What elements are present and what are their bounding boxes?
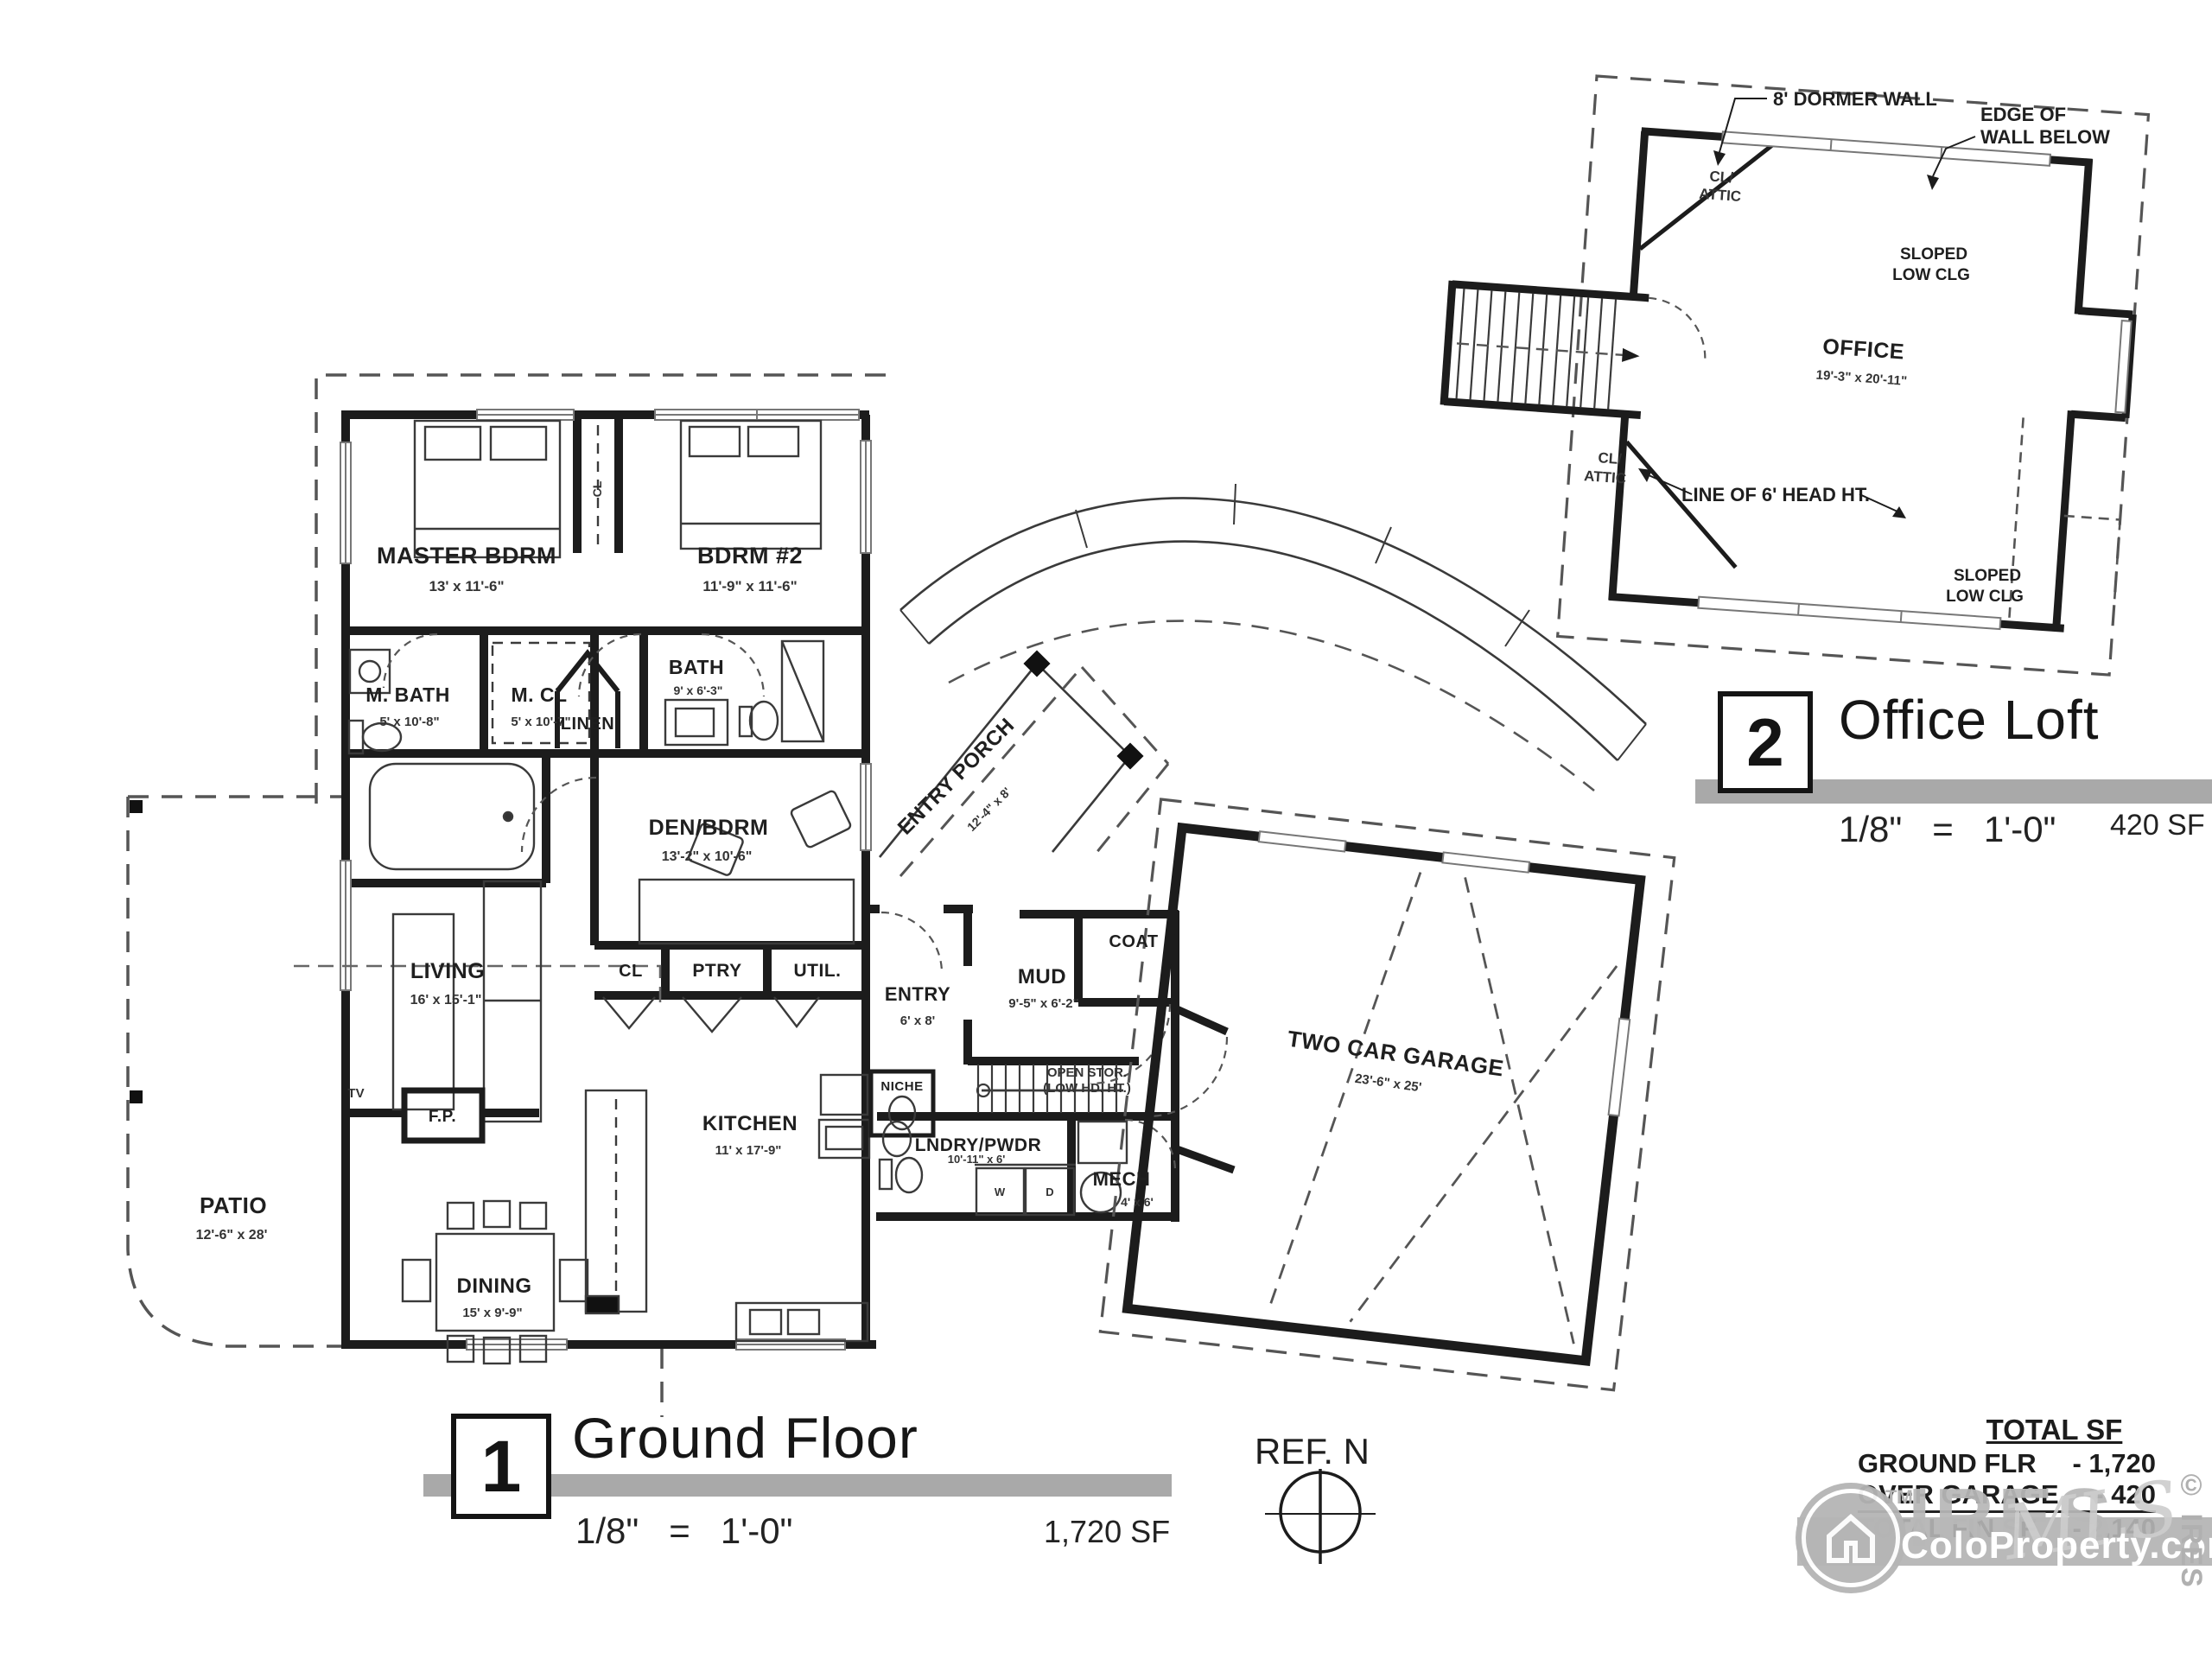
loft-windows [1689,131,2142,637]
label-entry-porch: ENTRY PORCH [893,714,1020,840]
watermark-site: ColoProperty.com® [1901,1524,2212,1567]
garage-walls [1128,828,1641,1361]
ground-floor-area: 1,720 SF [1044,1514,1170,1550]
label-cl-attic-bottom-2: ATTIC [1584,467,1627,486]
label-linen: LINEN [561,715,615,734]
label-sloped-1b: LOW CLG [1892,266,1970,284]
stair-direction-arrow [1622,348,1640,363]
leader-arrow [1713,150,1726,166]
compass: REF. N [1255,1431,1376,1564]
label-master-bdrm: MASTER BDRM [377,543,556,569]
label-edge-of-2: WALL BELOW [1980,126,2110,148]
label-lndry-dims: 10'-11" x 6' [948,1153,1006,1166]
label-edge-of-1: EDGE OF [1980,104,2066,125]
label-head-ht: LINE OF 6' HEAD HT. [1681,484,1870,505]
label-dormer-wall: 8' DORMER WALL [1773,88,1937,110]
house-icon [1821,1510,1881,1566]
patio-outline [128,797,346,1346]
office-loft-title: Office Loft [1839,688,2100,752]
label-entry: ENTRY [885,983,950,1005]
leader-arrow [1892,506,1906,518]
label-entry-dims: 6' x 8' [900,1014,936,1028]
label-washer: W [995,1185,1006,1198]
total-sf-heading: TOTAL SF [1858,1414,2156,1446]
label-niche: NICHE [880,1079,923,1094]
label-fp: F.P. [429,1108,456,1126]
office-loft-number: 2 [1746,703,1783,782]
label-garage: TWO CAR GARAGE [1286,1026,1505,1082]
label-entry-porch-dims: 12'-4" x 8' [964,785,1014,834]
label-mech-dims: 4' x 6' [1121,1195,1154,1209]
label-cl: CL [619,962,643,981]
label-cl-attic-top-2: ATTIC [1699,186,1742,205]
office-loft-plan: OFFICE 19'-3" x 20'-11" CL/ ATTIC CL/ AT… [1428,67,2148,676]
leader-arrow [1927,175,1939,190]
label-dryer: D [1046,1185,1053,1198]
label-mud-dims: 9'-5" x 6'-2" [1008,996,1078,1011]
label-dining: DINING [457,1274,532,1298]
label-living-dims: 16' x 15'-1" [410,993,482,1007]
garage-ceiling-dashed [1268,861,1624,1347]
label-mech: MECH [1093,1168,1151,1190]
patio-post [130,1090,143,1103]
label-cl-attic-bottom-1: CL/ [1598,449,1623,467]
label-office-dims: 19'-3" x 20'-11" [1815,368,1908,389]
garage [1100,799,1674,1390]
label-bdrm2-dims: 11'-9" x 11'-6" [702,578,797,594]
watermark-copyright: © IRES [2174,1469,2208,1589]
label-bath-dims: 9' x 6'-3" [674,683,723,697]
label-coat: COAT [1109,932,1158,951]
floor-plan-sheet: MASTER BDRM 13' x 11'-6" BDRM #2 11'-9" … [0,0,2212,1659]
label-mcl: M. CL [511,683,567,706]
label-ptry: PTRY [692,961,741,981]
entry-porch [880,650,1168,876]
label-patio-dims: 12'-6" x 28' [196,1228,268,1243]
label-bdrm2: BDRM #2 [697,543,803,569]
patio-post [130,800,143,813]
mud-garage-connectors [1177,1009,1234,1170]
label-kitchen: KITCHEN [702,1112,798,1135]
label-mud: MUD [1018,965,1066,988]
label-patio: PATIO [200,1192,267,1218]
compass-label: REF. N [1255,1431,1370,1471]
label-sloped-1a: SLOPED [1900,245,1967,264]
ground-floor-scale: 1/8" = 1'-0" [575,1510,792,1552]
ground-floor-plan: MASTER BDRM 13' x 11'-6" BDRM #2 11'-9" … [128,375,1675,1417]
ground-floor-number-box: 1 [451,1414,551,1519]
label-garage-dims: 23'-6" x 25' [1354,1071,1422,1096]
label-open-stor-2: (LOW HD. HT.) [1043,1081,1131,1096]
label-living: LIVING [410,959,485,983]
label-mbath: M. BATH [365,683,450,706]
label-open-stor-1: OPEN STOR. [1047,1065,1127,1080]
label-mbath-dims: 5' x 10'-8" [379,715,439,729]
label-cl-bdrm: CL [590,480,604,497]
office-loft-number-box: 2 [1718,691,1813,793]
label-office: OFFICE [1821,334,1904,365]
label-sloped-2a: SLOPED [1954,567,2021,585]
label-sloped-2b: LOW CLG [1946,588,2024,606]
label-den: DEN/BDRM [649,816,769,840]
label-dining-dims: 15' x 9'-9" [462,1306,522,1320]
loft-stairs [1444,281,1709,423]
office-loft-area: 420 SF [2110,809,2205,842]
label-tv: TV [347,1086,364,1101]
ground-floor-number: 1 [481,1425,522,1509]
label-kitchen-dims: 11' x 17'-9" [715,1143,782,1158]
label-bath: BATH [669,656,724,678]
ground-floor-title: Ground Floor [572,1405,918,1471]
label-util: UTIL. [794,961,842,981]
label-master-dims: 13' x 11'-6" [429,578,504,594]
office-loft-scale: 1/8" = 1'-0" [1839,809,2056,850]
label-cl-attic-top-1: CL/ [1709,168,1734,186]
breezeway-curve [900,484,1646,791]
label-den-dims: 13'-2" x 10'-6" [662,849,753,864]
